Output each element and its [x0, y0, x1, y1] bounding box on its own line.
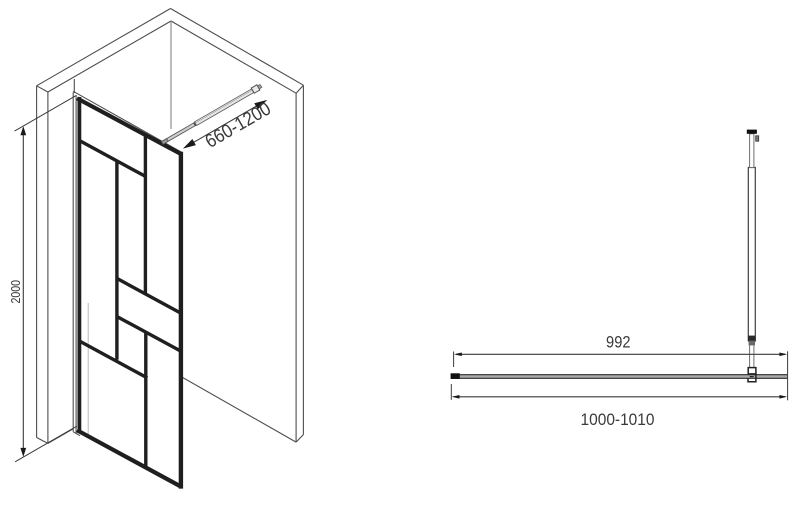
svg-text:1000-1010: 1000-1010 — [581, 410, 655, 429]
svg-text:660-1200: 660-1200 — [202, 98, 275, 152]
svg-text:992: 992 — [606, 332, 631, 351]
svg-text:2000: 2000 — [9, 280, 23, 304]
